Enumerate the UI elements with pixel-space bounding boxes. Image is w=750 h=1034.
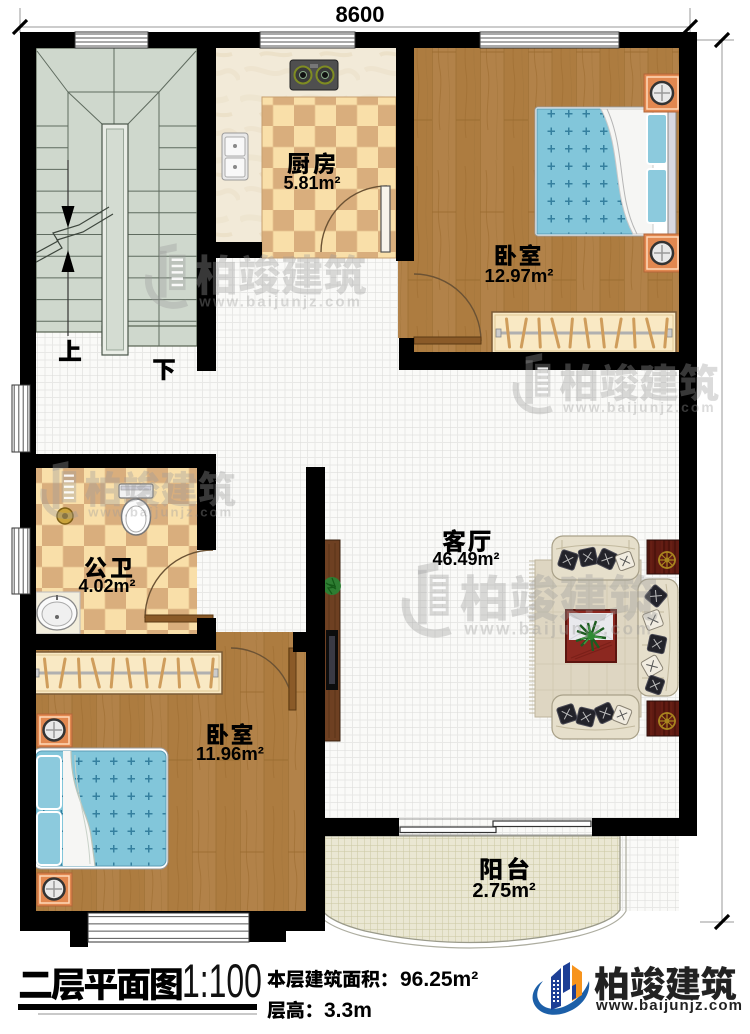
svg-text:www.baijunjz.com: www.baijunjz.com <box>562 400 716 415</box>
svg-text:2.75m²: 2.75m² <box>472 880 536 902</box>
svg-text:www.baijunjz.com: www.baijunjz.com <box>87 505 233 520</box>
svg-text:96.25m²: 96.25m² <box>400 968 478 991</box>
svg-text:3.3m: 3.3m <box>324 999 372 1022</box>
svg-text:46.49m²: 46.49m² <box>432 549 499 569</box>
svg-text:www.baijunjz.com: www.baijunjz.com <box>463 619 653 638</box>
svg-text:www.baijunjz.com: www.baijunjz.com <box>198 294 362 310</box>
svg-text:8600: 8600 <box>336 2 385 27</box>
svg-text:12.97m²: 12.97m² <box>485 265 554 286</box>
svg-text:www.baijunjz.com: www.baijunjz.com <box>595 997 743 1014</box>
svg-text:1:100: 1:100 <box>182 955 262 1008</box>
svg-text:11.96m²: 11.96m² <box>196 743 264 764</box>
svg-text:4.02m²: 4.02m² <box>78 576 135 596</box>
svg-text:5.81m²: 5.81m² <box>283 173 340 193</box>
